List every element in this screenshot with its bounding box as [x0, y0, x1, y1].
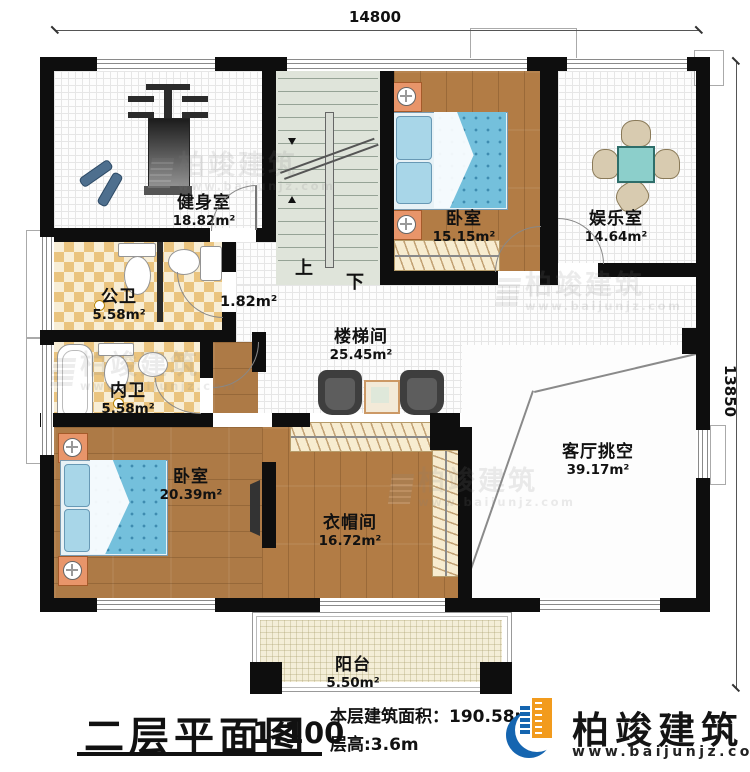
window: [41, 237, 53, 330]
wall-pier: [682, 328, 696, 354]
balcony-slider-door: [320, 600, 445, 610]
room-label-bedroom-bottom: 卧室20.39m²: [160, 462, 223, 503]
balcony-surface: [260, 620, 502, 682]
room-label-living-void: 客厅挑空39.17m²: [562, 437, 634, 478]
room-label-public-bath: 公卫5.58m²: [92, 282, 145, 323]
window: [97, 58, 215, 70]
wall: [598, 263, 696, 277]
sink: [138, 352, 168, 377]
nightstand: [392, 210, 422, 240]
room-label-stair-hall: 楼梯间25.45m²: [330, 322, 393, 363]
wall: [540, 71, 558, 277]
hall-floor: [236, 285, 696, 345]
hall-side-table-top: [371, 387, 389, 403]
nightstand: [58, 556, 88, 586]
window: [540, 599, 660, 611]
chair: [621, 120, 651, 147]
wall: [40, 455, 54, 612]
wall: [262, 71, 276, 230]
room-label-balcony: 阳台5.50m²: [326, 650, 379, 691]
floor-height-text: 层高:3.6m: [330, 730, 419, 755]
wall: [272, 413, 310, 427]
nightstand: [392, 82, 422, 112]
corridor-area-label: 1.82m²: [220, 294, 277, 310]
top-dimension-label: 14800: [330, 8, 420, 26]
floor-plan-page: 14800 13850 上 下: [0, 0, 750, 772]
wall: [54, 228, 210, 242]
wall: [40, 598, 97, 612]
bathtub-basin: [62, 350, 88, 418]
wall: [215, 598, 320, 612]
window: [697, 430, 709, 478]
window: [41, 345, 53, 455]
wall: [696, 57, 710, 430]
tv: [250, 480, 260, 536]
brand-logo-icon: [506, 696, 564, 766]
wall: [215, 57, 287, 71]
pillow: [64, 464, 90, 507]
wall: [40, 413, 213, 427]
stair-rail: [325, 112, 334, 268]
wall: [222, 242, 236, 272]
wall: [380, 71, 394, 285]
pillow: [64, 509, 90, 552]
window: [567, 58, 687, 70]
room-label-cloakroom: 衣帽间16.72m²: [319, 508, 382, 549]
balcony-post: [480, 662, 512, 694]
stair-arrow-icon: [288, 138, 296, 145]
treadmill-bar: [128, 96, 154, 102]
balcony-post: [250, 662, 282, 694]
game-table: [617, 146, 655, 183]
wall: [40, 57, 54, 237]
hall-chair: [318, 370, 362, 415]
top-dimension-line: [55, 30, 700, 31]
room-label-bedroom-top: 卧室15.15m²: [433, 204, 496, 245]
wall: [445, 598, 540, 612]
stair-arrow-icon: [288, 196, 296, 203]
wall: [660, 598, 710, 612]
wall: [696, 478, 710, 612]
chair: [653, 149, 680, 179]
wall: [380, 271, 498, 285]
stair-down-label: 下: [346, 268, 364, 294]
toilet-tank: [118, 243, 156, 257]
pillow: [396, 162, 432, 204]
gym-door-leaf: [255, 186, 257, 230]
window: [97, 599, 215, 611]
wall: [54, 330, 236, 342]
wall: [40, 330, 54, 345]
treadmill-belt: [148, 118, 190, 192]
window-frame: [710, 425, 726, 485]
wall: [458, 427, 472, 598]
wall: [527, 57, 567, 71]
stair-up-label: 上: [295, 254, 313, 280]
brand-website: www.baijunjz.com: [572, 744, 750, 760]
corridor-floor: [236, 242, 276, 285]
nightstand: [58, 433, 88, 463]
pillow: [396, 116, 432, 160]
treadmill-bar: [182, 96, 208, 102]
bath-divider-wall: [157, 242, 163, 322]
window: [287, 58, 527, 70]
room-label-private-bath: 内卫5.58m²: [101, 376, 154, 417]
wall-pier: [430, 413, 460, 450]
tv-partition-wall: [262, 462, 276, 548]
wardrobe: [432, 450, 460, 577]
right-dimension-label: 13850: [721, 361, 739, 421]
hall-chair: [400, 370, 444, 415]
wall: [200, 342, 213, 378]
title-underline: [77, 752, 322, 756]
chair: [592, 149, 619, 179]
treadmill-stem: [164, 84, 172, 120]
wall: [256, 228, 276, 242]
